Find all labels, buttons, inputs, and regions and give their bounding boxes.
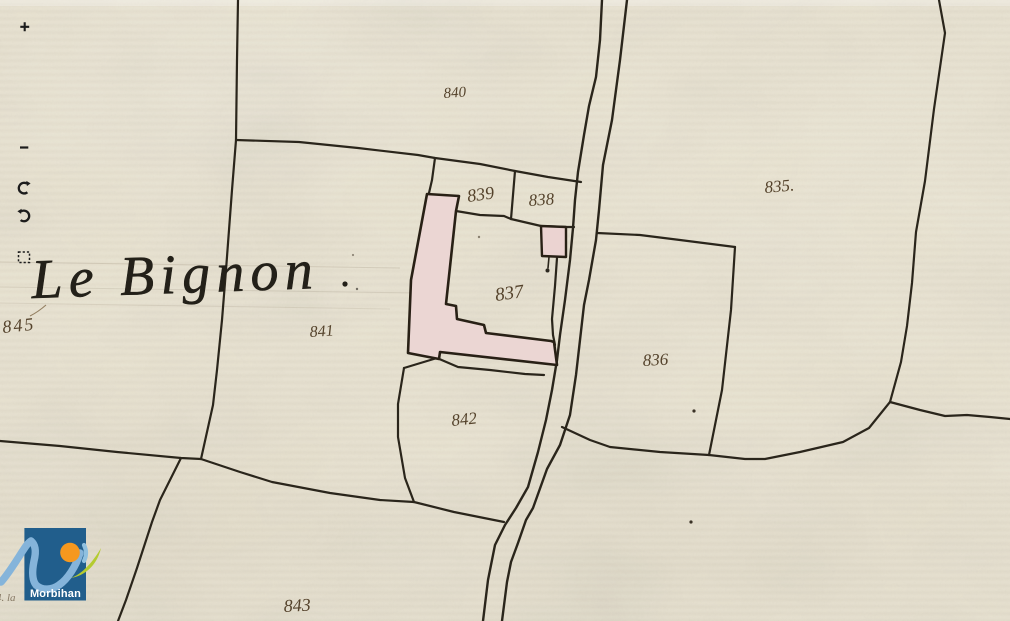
svg-text:Le Bignon: Le Bignon	[29, 239, 320, 311]
svg-text:841: 841	[309, 322, 334, 341]
svg-text:Morbihan: Morbihan	[30, 588, 81, 600]
svg-text:835.: 835.	[764, 175, 795, 197]
svg-text:4. la: 4. la	[0, 592, 16, 604]
svg-text:838: 838	[528, 189, 555, 210]
svg-text:842: 842	[450, 408, 478, 430]
svg-text:837: 837	[494, 281, 527, 306]
svg-text:845: 845	[1, 314, 36, 337]
svg-text:836: 836	[642, 350, 669, 370]
svg-text:840: 840	[443, 84, 467, 102]
svg-text:843: 843	[283, 595, 311, 616]
svg-text:839: 839	[466, 182, 496, 206]
